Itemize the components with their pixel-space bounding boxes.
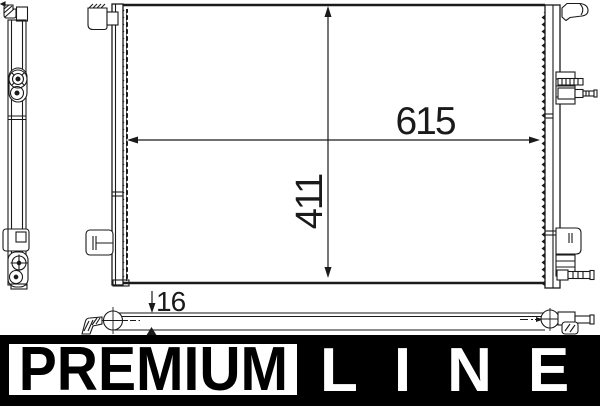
arrow-down-small bbox=[149, 303, 156, 313]
width-dimension-label: 615 bbox=[395, 100, 455, 143]
side-view bbox=[1, 2, 29, 289]
line-box: LINE bbox=[304, 335, 600, 406]
side-middle-port bbox=[9, 68, 27, 102]
left-middle-bracket bbox=[86, 230, 113, 255]
side-bottom-port bbox=[8, 252, 28, 287]
condenser-drawing-page: 615 411 16 bbox=[0, 0, 600, 408]
dimension-depth: 16 bbox=[146, 286, 186, 336]
side-lower-bracket bbox=[3, 229, 29, 251]
arrow-right bbox=[529, 137, 540, 144]
left-tank bbox=[112, 4, 128, 285]
side-top-fitting bbox=[1, 2, 28, 21]
line-label: LINE bbox=[320, 340, 600, 402]
arrow-left bbox=[127, 137, 138, 144]
right-middle-connector bbox=[556, 72, 597, 104]
premium-box: PREMIUM bbox=[2, 337, 304, 402]
top-right-elbow-fitting bbox=[562, 4, 588, 21]
height-dimension-label: 411 bbox=[289, 174, 331, 229]
front-view bbox=[86, 4, 597, 289]
arrow-down bbox=[325, 267, 332, 278]
premium-line-logo: PREMIUM LINE bbox=[0, 335, 600, 406]
depth-dimension-label: 16 bbox=[156, 286, 186, 317]
premium-label: PREMIUM bbox=[18, 339, 287, 401]
dimension-height: 411 bbox=[289, 6, 332, 278]
arrow-up bbox=[325, 6, 332, 17]
dimension-width: 615 bbox=[127, 100, 540, 144]
